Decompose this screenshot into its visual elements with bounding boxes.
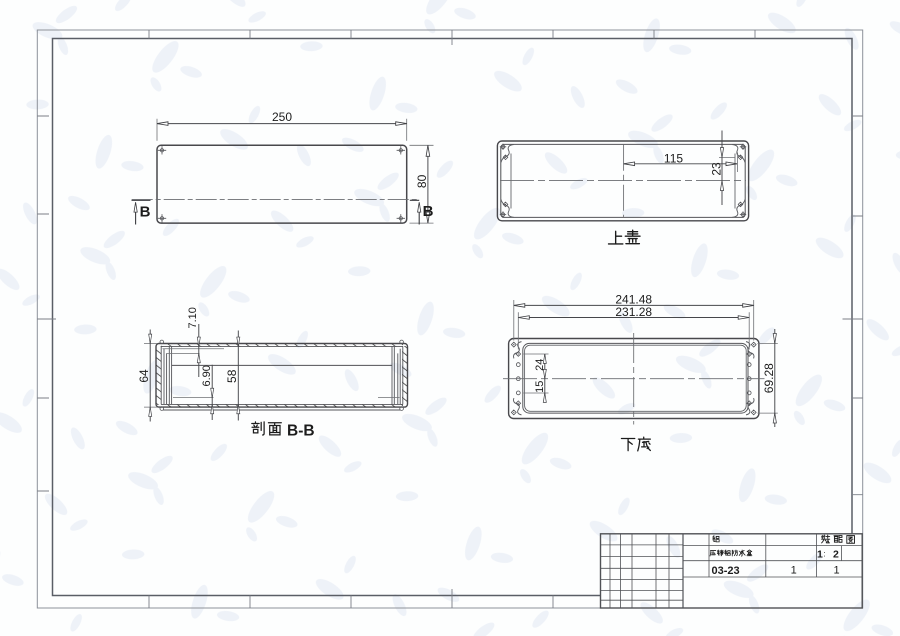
svg-text:6.90: 6.90 (201, 365, 213, 386)
svg-text:64: 64 (137, 369, 151, 383)
svg-text:115: 115 (664, 151, 683, 165)
svg-text:1: 1 (817, 549, 823, 561)
svg-text:1: 1 (791, 565, 797, 577)
svg-text:15: 15 (534, 381, 546, 393)
svg-text:24: 24 (534, 359, 546, 371)
svg-text:7.10: 7.10 (187, 307, 199, 328)
svg-text:1: 1 (833, 565, 839, 577)
svg-text:23: 23 (710, 162, 724, 176)
svg-text:2: 2 (833, 549, 839, 561)
svg-text:58: 58 (225, 369, 239, 383)
svg-text:B: B (140, 204, 151, 221)
svg-text:231.28: 231.28 (615, 305, 652, 319)
svg-text:69.28: 69.28 (762, 363, 776, 393)
svg-text::: : (824, 550, 826, 559)
svg-text:B-B: B-B (287, 422, 315, 439)
svg-text:B: B (423, 203, 434, 220)
svg-text:80: 80 (415, 174, 429, 188)
svg-text:03-23: 03-23 (712, 565, 740, 577)
svg-text:250: 250 (272, 110, 292, 124)
